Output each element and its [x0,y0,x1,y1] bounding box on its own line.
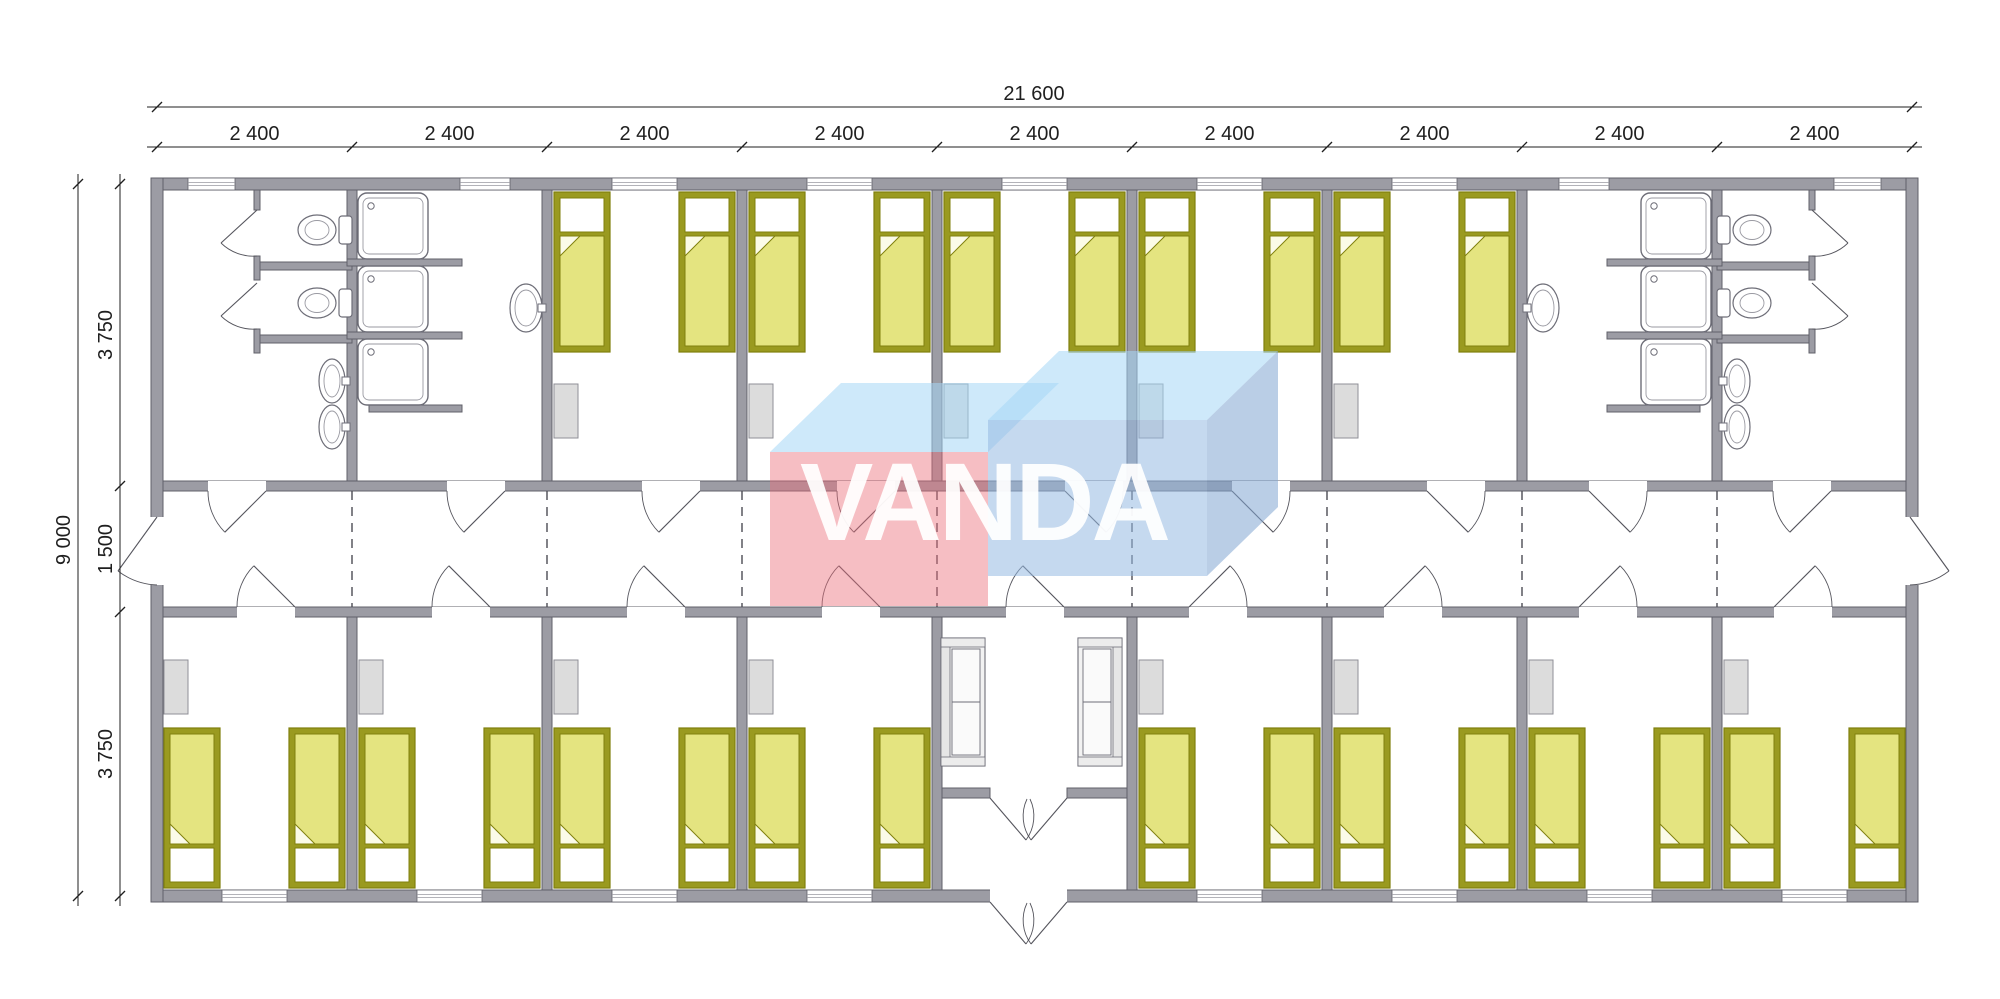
toilet [1717,215,1771,245]
partition-wall-top-band [542,190,552,481]
window-frame [1392,178,1457,190]
window [1834,178,1881,190]
bed [1334,192,1390,352]
toilet-tank [339,216,352,244]
window-frame [1834,178,1881,190]
wc-stall-front [1809,329,1815,353]
lobby-wall [1067,788,1127,798]
shower-tray [1641,339,1711,405]
wc-stall-front [1809,190,1815,210]
bed-pillow [880,848,924,882]
partition-wall-bottom-band [542,617,552,890]
sofa-armrest [1078,638,1122,647]
toilet [1717,288,1771,318]
window-frame [612,178,677,190]
sofa [941,638,985,766]
window-frame [1392,890,1457,902]
wardrobe [1724,660,1748,714]
bed [1264,728,1320,888]
watermark-text: VANDA [800,441,1169,564]
lobby-wall [942,788,990,798]
bed-blanket [880,734,924,844]
bed [289,728,345,888]
window [1002,178,1067,190]
dimension-label: 2 400 [1204,123,1254,145]
dimension-label: 21 600 [1003,83,1064,105]
window [807,178,872,190]
window-frame [1587,890,1652,902]
sofa-armrest [941,757,985,766]
bed-pillow [1145,198,1189,232]
bed-blanket [1465,734,1509,844]
basin-tap [538,304,546,312]
dimension-label: 9 000 [53,515,75,565]
bed-blanket [1660,734,1704,844]
shower-tray-outer [1641,193,1711,259]
wc-stall-partition [257,335,352,343]
door-opening [1579,607,1637,619]
bed-pillow [560,848,604,882]
door-opening [627,607,685,619]
shower-tray-outer [358,339,428,405]
window-frame [612,890,677,902]
door-opening [1589,481,1647,493]
basin-outer [319,359,345,403]
bed [749,192,805,352]
shower-tray-outer [358,193,428,259]
window-frame [807,178,872,190]
shower-partition [347,259,462,266]
bed-blanket [1535,734,1579,844]
window [460,178,510,190]
bed-blanket [685,236,729,346]
window [1197,890,1262,902]
bed-pillow [1855,848,1899,882]
door-opening [447,481,505,493]
basin-outer [1724,359,1750,403]
wardrobe [749,384,773,438]
dimension-label: 2 400 [229,123,279,145]
shower-tray [358,339,428,405]
bed-pillow [1145,848,1189,882]
bed [944,192,1000,352]
bed [679,192,735,352]
toilet-bowl [1733,215,1771,245]
shower-tray-outer [358,266,428,332]
bed [1069,192,1125,352]
shower-tray [1641,266,1711,332]
bed-blanket [1340,236,1384,346]
wc-stall-partition [1717,262,1812,270]
toilet-tank [1717,289,1730,317]
bed-blanket [1270,236,1314,346]
toilet-tank [339,289,352,317]
wardrobe [554,660,578,714]
wc-stall-partition [257,262,352,270]
sofa-back [1113,638,1122,766]
basin-outer [1724,405,1750,449]
partition-wall-bottom-band [1712,617,1722,890]
wc-stall-front [254,329,260,353]
bed-pillow [1660,848,1704,882]
bed [874,192,930,352]
floor-plan-screenshot: 21 6002 4002 4002 4002 4002 4002 4002 40… [0,0,2000,999]
bed [1139,728,1195,888]
window-frame [417,890,482,902]
door-opening [432,607,490,619]
door-opening [1774,607,1832,619]
bed-blanket [1075,236,1119,346]
bed-pillow [170,848,214,882]
door-opening [642,481,700,493]
shower-tray [1641,193,1711,259]
shower-tray [358,266,428,332]
bed-blanket [1270,734,1314,844]
corridor-end-opening [150,517,164,585]
bed-blanket [365,734,409,844]
toilet-bowl [298,288,336,318]
bed-pillow [560,198,604,232]
bed [679,728,735,888]
shower-tray-outer [1641,266,1711,332]
wardrobe [749,660,773,714]
window-frame [460,178,510,190]
bed [1654,728,1710,888]
basin-tap [342,377,350,385]
basin-tap [342,423,350,431]
door-opening [822,607,880,619]
sofa [1078,638,1122,766]
dimension-label: 2 400 [1789,123,1839,145]
door-opening [1189,607,1247,619]
bed-blanket [170,734,214,844]
bed-blanket [490,734,534,844]
basin-tap [1523,304,1531,312]
window-frame [188,178,235,190]
bed-pillow [1340,848,1384,882]
door-opening [1427,481,1485,493]
wardrobe [164,660,188,714]
window [188,178,235,190]
window-frame [1197,890,1262,902]
window-frame [807,890,872,902]
bed-pillow [1340,198,1384,232]
partition-wall-bottom-band [347,617,357,890]
shower-partition [347,332,462,339]
wardrobe [1529,660,1553,714]
bed-blanket [295,734,339,844]
window [1197,178,1262,190]
bed [1139,192,1195,352]
dimension-label: 2 400 [1399,123,1449,145]
bed-blanket [560,734,604,844]
shower-tray-outer [1641,339,1711,405]
partition-wall-top-band [737,190,747,481]
shower-partition [1607,259,1722,266]
basin-tap [1719,423,1727,431]
bed [554,192,610,352]
door-opening [1384,607,1442,619]
bed-blanket [755,236,799,346]
wardrobe [1334,384,1358,438]
bed-pillow [755,198,799,232]
window [1782,890,1847,902]
bed-blanket [880,236,924,346]
shower-partition [1607,332,1722,339]
watermark: VANDA [770,351,1278,606]
shower-partition [1607,405,1700,412]
window [222,890,287,902]
sofa-back [941,638,950,766]
sofa-armrest [941,638,985,647]
window [1587,890,1652,902]
dimension-label: 2 400 [619,123,669,145]
bed [1849,728,1905,888]
toilet-bowl [298,215,336,245]
partition-wall-top-band [1322,190,1332,481]
dimension-label: 2 400 [424,123,474,145]
wardrobe [1334,660,1358,714]
door-opening [1773,481,1831,493]
wc-stall-front [1809,256,1815,280]
window [1559,178,1609,190]
wc-stall-partition [1717,335,1812,343]
basin-outer [319,405,345,449]
bed-blanket [755,734,799,844]
bed-pillow [1465,198,1509,232]
bed [1529,728,1585,888]
wardrobe [359,660,383,714]
bed-pillow [685,848,729,882]
bed-blanket [560,236,604,346]
bed-pillow [1535,848,1579,882]
window-frame [1002,178,1067,190]
bed-blanket [1730,734,1774,844]
bed-pillow [685,198,729,232]
dimension-label: 2 400 [1594,123,1644,145]
bed-pillow [1270,848,1314,882]
bed-blanket [1145,734,1189,844]
partition-wall-bottom-band [1322,617,1332,890]
partition-wall-bottom-band [1127,617,1137,890]
bed [1459,192,1515,352]
door-opening [237,607,295,619]
bed-pillow [880,198,924,232]
dimension-label: 2 400 [1009,123,1059,145]
bed-blanket [685,734,729,844]
window-frame [222,890,287,902]
bed-pillow [1730,848,1774,882]
wc-stall-front [254,256,260,280]
door-opening [208,481,266,493]
bed [484,728,540,888]
bed [359,728,415,888]
door-opening [1006,607,1064,619]
window-frame [1782,890,1847,902]
bed-blanket [1855,734,1899,844]
bed-blanket [1465,236,1509,346]
bed [1724,728,1780,888]
bed-pillow [755,848,799,882]
bed [1459,728,1515,888]
partition-wall-top-band [1517,190,1527,481]
sofa-armrest [1078,757,1122,766]
partition-wall-bottom-band [737,617,747,890]
window [1392,890,1457,902]
dimension-label: 1 500 [95,524,117,574]
toilet-bowl [1733,288,1771,318]
window [807,890,872,902]
floor-plan-svg: 21 6002 4002 4002 4002 4002 4002 4002 40… [0,0,2000,999]
bed [874,728,930,888]
bed-pillow [950,198,994,232]
toilet [298,288,352,318]
wardrobe [1139,660,1163,714]
entrance-opening [990,889,1067,903]
bed-blanket [1145,236,1189,346]
toilet [298,215,352,245]
window [417,890,482,902]
bed-pillow [1465,848,1509,882]
shower-tray [358,193,428,259]
bed-pillow [365,848,409,882]
window-frame [1197,178,1262,190]
dimension-label: 2 400 [814,123,864,145]
partition-wall-bottom-band [1517,617,1527,890]
wardrobe [554,384,578,438]
window [612,890,677,902]
window [1392,178,1457,190]
bed [1264,192,1320,352]
dimension-label: 3 750 [95,310,117,360]
bed [749,728,805,888]
wc-stall-front [254,190,260,210]
bed [1334,728,1390,888]
basin-tap [1719,377,1727,385]
bed-pillow [1270,198,1314,232]
bed-blanket [1340,734,1384,844]
bed [164,728,220,888]
bed-pillow [295,848,339,882]
bed-pillow [1075,198,1119,232]
bed-pillow [490,848,534,882]
window [612,178,677,190]
dimension-label: 3 750 [95,729,117,779]
bed [554,728,610,888]
shower-partition [369,405,462,412]
bed-blanket [950,236,994,346]
window-frame [1559,178,1609,190]
toilet-tank [1717,216,1730,244]
